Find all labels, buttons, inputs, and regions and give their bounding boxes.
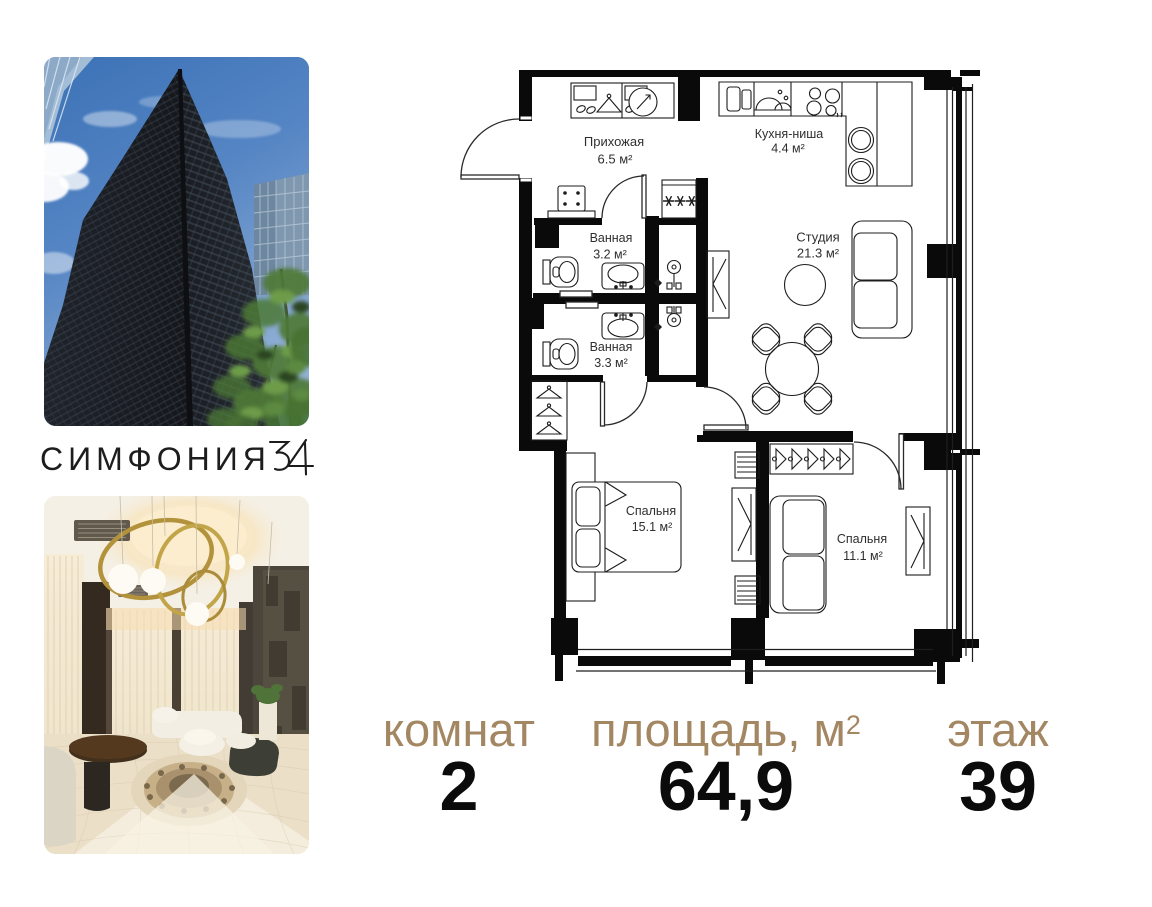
svg-text:15.1 м²: 15.1 м² bbox=[632, 520, 673, 534]
svg-text:Ванная: Ванная bbox=[590, 340, 633, 354]
svg-text:3.3 м²: 3.3 м² bbox=[594, 356, 628, 370]
svg-text:Спальня: Спальня bbox=[837, 532, 887, 546]
svg-text:6.5 м²: 6.5 м² bbox=[598, 152, 634, 167]
svg-text:Студия: Студия bbox=[796, 230, 839, 245]
svg-text:3.2 м²: 3.2 м² bbox=[593, 248, 627, 262]
svg-text:4.4 м²: 4.4 м² bbox=[771, 142, 805, 156]
svg-text:11.1 м²: 11.1 м² bbox=[843, 549, 883, 563]
svg-text:Кухня-ниша: Кухня-ниша bbox=[755, 127, 824, 141]
svg-text:Спальня: Спальня bbox=[626, 504, 676, 518]
svg-text:Прихожая: Прихожая bbox=[584, 134, 644, 149]
svg-text:21.3 м²: 21.3 м² bbox=[797, 246, 840, 261]
svg-text:Ванная: Ванная bbox=[590, 231, 633, 245]
